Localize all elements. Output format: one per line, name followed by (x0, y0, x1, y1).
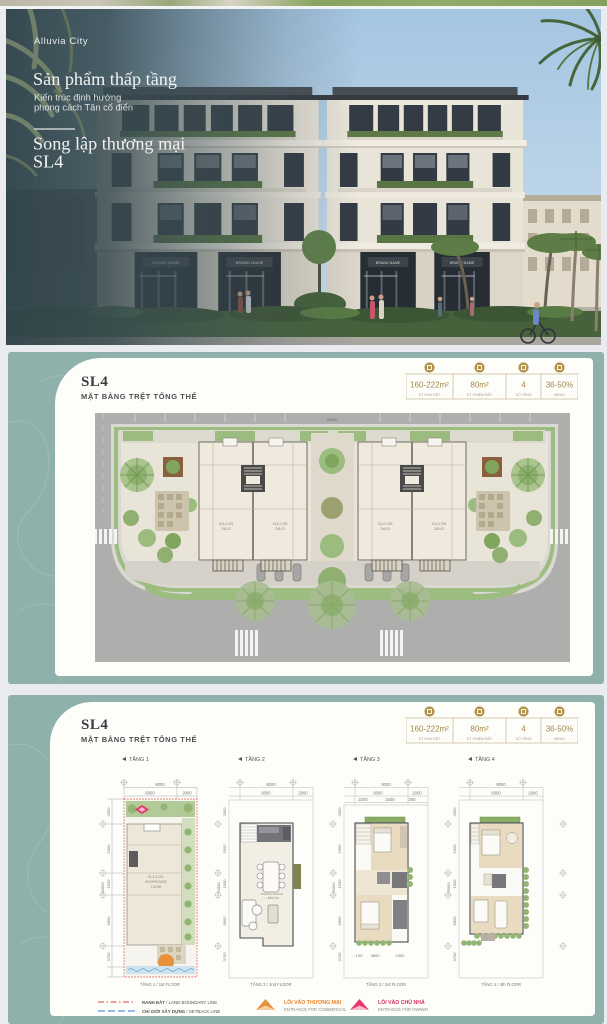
svg-text:8000: 8000 (496, 782, 506, 787)
svg-text:5800: 5800 (222, 916, 227, 926)
svg-text:TẦNG 4 / 4th FLOOR: TẦNG 4 / 4th FLOOR (481, 982, 521, 987)
svg-text:5300: 5300 (106, 844, 111, 854)
svg-text:3700: 3700 (337, 952, 342, 962)
svg-text:RANH ĐẤT / LAND BOUNDARY LINE: RANH ĐẤT / LAND BOUNDARY LINE (142, 1000, 217, 1005)
svg-text:5800: 5800 (452, 916, 457, 926)
svg-text:2000: 2000 (298, 791, 308, 796)
svg-text:MĐXD: MĐXD (554, 393, 565, 397)
svg-text:20000: 20000 (326, 417, 338, 422)
svg-text:Kiến trúc định hướng: Kiến trúc định hướng (34, 93, 121, 103)
svg-text:36-50%: 36-50% (546, 725, 574, 734)
svg-text:200: 200 (409, 797, 417, 802)
svg-text:80m²: 80m² (470, 381, 489, 390)
svg-text:CHỈ GIỚI XÂY DỰNG / SETBACK LI: CHỈ GIỚI XÂY DỰNG / SETBACK LINE (142, 1009, 220, 1014)
svg-text:8000: 8000 (155, 782, 165, 787)
svg-text:1600: 1600 (106, 879, 111, 889)
svg-text:20000: 20000 (100, 882, 105, 894)
svg-text:1600: 1600 (222, 879, 227, 889)
svg-text:DT CHIẾM ĐẤT: DT CHIẾM ĐẤT (467, 392, 493, 397)
svg-text:20000: 20000 (331, 882, 336, 894)
svg-text:TẦNG 3: TẦNG 3 (360, 756, 380, 763)
svg-text:246.02: 246.02 (221, 527, 231, 531)
svg-text:5300: 5300 (452, 844, 457, 854)
svg-text:8000: 8000 (381, 782, 391, 787)
svg-text:phong cách Tân cổ điển: phong cách Tân cổ điển (34, 103, 133, 113)
svg-text:SỐ TẦNG: SỐ TẦNG (515, 392, 531, 397)
svg-text:3600: 3600 (371, 953, 381, 958)
svg-text:+ BẾP ĂN: + BẾP ĂN (265, 895, 279, 900)
svg-text:SL4-2.291: SL4-2.291 (219, 522, 234, 526)
svg-text:2600: 2600 (106, 807, 111, 817)
svg-text:5300: 5300 (222, 844, 227, 854)
svg-text:LỐI VÀO THƯƠNG MẠI: LỐI VÀO THƯƠNG MẠI (284, 999, 342, 1006)
svg-text:SHOPHOUSE: SHOPHOUSE (145, 880, 167, 884)
svg-text:2600: 2600 (452, 807, 457, 817)
svg-text:6000: 6000 (373, 791, 383, 796)
svg-text:Sản phẩm thấp tầng: Sản phẩm thấp tầng (33, 69, 177, 89)
svg-text:246.02: 246.02 (380, 527, 390, 531)
svg-text:MĐXD: MĐXD (554, 737, 565, 741)
svg-text:TẦNG 3 / 3rd FLOOR: TẦNG 3 / 3rd FLOOR (366, 982, 406, 987)
svg-text:3700: 3700 (106, 952, 111, 962)
svg-text:ENTRANCE FOR COMMERCIAL: ENTRANCE FOR COMMERCIAL (284, 1007, 347, 1012)
svg-text:1600: 1600 (337, 879, 342, 889)
svg-text:4: 4 (521, 725, 526, 734)
svg-text:2600: 2600 (222, 807, 227, 817)
svg-text:SL4-2.292: SL4-2.292 (273, 522, 288, 526)
svg-text:100: 100 (356, 953, 363, 958)
svg-text:20000: 20000 (216, 882, 221, 894)
svg-text:2000: 2000 (412, 791, 422, 796)
svg-text:DT KHU ĐẤT: DT KHU ĐẤT (419, 393, 441, 397)
svg-text:3700: 3700 (222, 952, 227, 962)
svg-text:TẦNG 2 / 2nd FLOOR: TẦNG 2 / 2nd FLOOR (250, 982, 291, 987)
svg-text:4: 4 (521, 381, 526, 390)
svg-text:80m²: 80m² (470, 725, 489, 734)
svg-text:SL4-2.294: SL4-2.294 (432, 522, 447, 526)
svg-text:6000: 6000 (491, 791, 501, 796)
svg-text:5800: 5800 (337, 916, 342, 926)
svg-text:1600: 1600 (452, 879, 457, 889)
svg-text:SỐ TẦNG: SỐ TẦNG (515, 736, 531, 741)
svg-text:246.02: 246.02 (275, 527, 285, 531)
svg-text:160-222m²: 160-222m² (410, 381, 449, 390)
svg-text:SL4-2.291: SL4-2.291 (148, 875, 164, 879)
svg-text:3400: 3400 (385, 797, 395, 802)
svg-text:Alluvia City: Alluvia City (34, 36, 88, 47)
svg-text:160-222m²: 160-222m² (410, 725, 449, 734)
svg-text:2000: 2000 (182, 791, 192, 796)
svg-text:SL4-2.293: SL4-2.293 (378, 522, 393, 526)
svg-text:DT CHIẾM ĐẤT: DT CHIẾM ĐẤT (467, 736, 493, 741)
svg-text:ENTRANCE FOR OWNER: ENTRANCE FOR OWNER (378, 1007, 428, 1012)
svg-text:6000: 6000 (261, 791, 271, 796)
svg-text:LỐI VÀO CHỦ NHÀ: LỐI VÀO CHỦ NHÀ (378, 999, 425, 1006)
svg-text:TẦNG 1 / 1st FLOOR: TẦNG 1 / 1st FLOOR (140, 982, 180, 987)
svg-text:36-50%: 36-50% (546, 381, 574, 390)
svg-text:Song lập thương mại: Song lập thương mại (33, 134, 185, 154)
svg-text:TẦNG 1: TẦNG 1 (129, 756, 149, 763)
svg-text:6000: 6000 (145, 791, 155, 796)
svg-text:SL4: SL4 (33, 152, 63, 172)
svg-text:TẦNG 4: TẦNG 4 (475, 756, 495, 763)
svg-text:2600: 2600 (337, 807, 342, 817)
svg-text:5800: 5800 (106, 916, 111, 926)
svg-text:246.02: 246.02 (434, 527, 444, 531)
svg-text:2000: 2000 (528, 791, 538, 796)
svg-text:2200: 2200 (358, 797, 368, 802)
svg-text:20000: 20000 (446, 882, 451, 894)
svg-text:8000: 8000 (266, 782, 276, 787)
svg-text:2300: 2300 (396, 953, 406, 958)
svg-text:3700: 3700 (452, 952, 457, 962)
svg-text:DT KHU ĐẤT: DT KHU ĐẤT (419, 737, 441, 741)
svg-text:TẦNG 2: TẦNG 2 (245, 756, 265, 763)
svg-text:131.86: 131.86 (151, 885, 161, 889)
svg-text:5300: 5300 (337, 844, 342, 854)
